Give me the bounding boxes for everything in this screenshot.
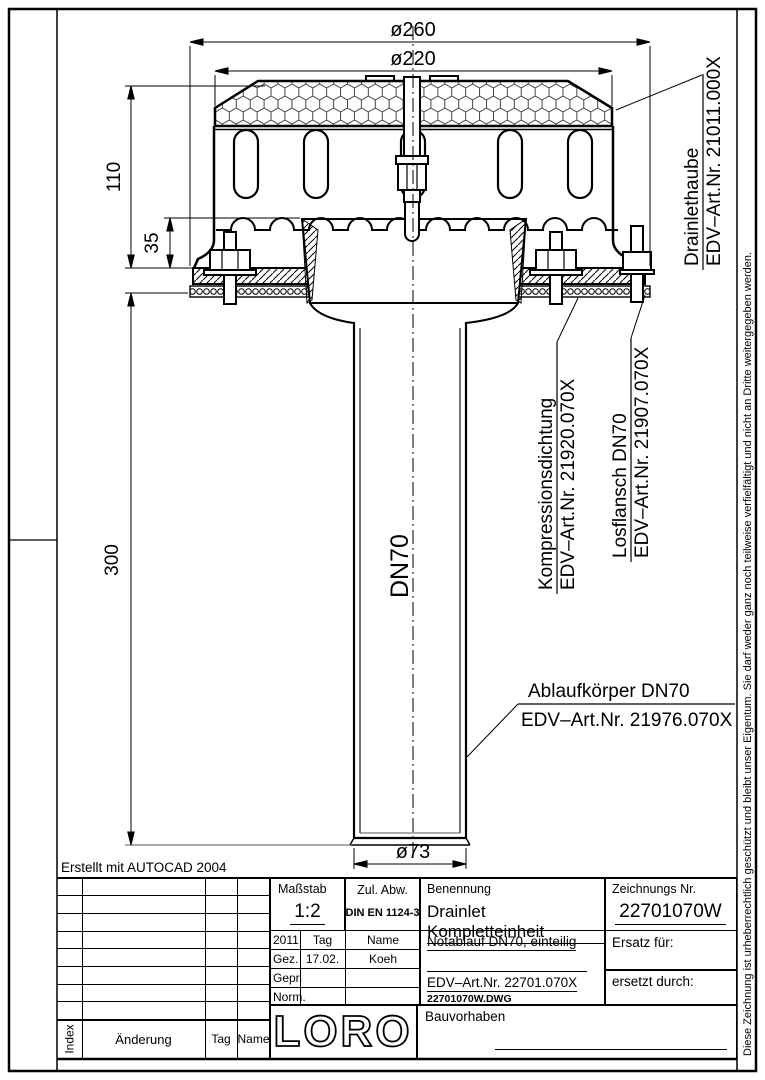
- tolerance-standard: DIN EN 1124-3: [345, 907, 420, 919]
- dim-110: 110: [104, 162, 125, 192]
- label-body-name: Ablaufkörper DN70: [528, 681, 690, 702]
- dim-35: 35: [142, 232, 163, 253]
- dim-d220: ø220: [390, 48, 436, 70]
- rev-col-name: Name: [237, 1019, 270, 1059]
- copyright-vertical-text: Diese Zeichnung ist urheberrechtlich ges…: [742, 252, 754, 1056]
- logo-box: LORO: [269, 1004, 418, 1060]
- label-hood-name: Drainlethaube: [682, 148, 703, 266]
- label-body-artnr: EDV–Art.Nr. 21976.070X: [521, 710, 733, 731]
- label-seal-name: Kompressionsdichtung: [536, 398, 557, 590]
- drain-pipe: [310, 303, 518, 845]
- rev-col-tag: Tag: [205, 1019, 237, 1059]
- bauvorhaben-box: Bauvorhaben: [416, 1004, 737, 1060]
- scale-value: 1:2: [290, 901, 324, 925]
- dim-300: 300: [102, 544, 123, 576]
- drawing-number: 22701070W: [615, 901, 725, 925]
- subtitle: Notablauf DN70, einteilig: [427, 934, 576, 951]
- dim-d73: ø73: [396, 841, 430, 863]
- drawing-sheet: ø260 ø220 110 35 300 ø73 DN70 Dr: [0, 0, 765, 1080]
- dim-d260: ø260: [390, 19, 436, 41]
- part-labels: DN70 Drainlethaube EDV–Art.Nr. 21011.000…: [386, 56, 735, 757]
- zul-abw-box: Zul. Abw. DIN EN 1124-3: [344, 878, 421, 931]
- label-flange-name: Losflansch DN70: [610, 413, 631, 558]
- edv-artnr: EDV–Art.Nr. 22701.070X: [427, 975, 577, 992]
- ersetzt-box: ersetzt durch:: [604, 969, 737, 1006]
- subtitle-box: Notablauf DN70, einteilig EDV–Art.Nr. 22…: [419, 930, 606, 1006]
- svg-text:LORO: LORO: [273, 1007, 412, 1056]
- rev-col-aenderung: Änderung: [82, 1019, 205, 1059]
- loro-logo: LORO: [270, 1005, 416, 1058]
- benennung-box: Benennung Drainlet Kompletteinheit: [419, 878, 606, 931]
- zeichnungsnr-box: Zeichnungs Nr. 22701070W: [604, 878, 737, 931]
- ersatz-box: Ersatz für:: [604, 930, 737, 971]
- pipe-size-label: DN70: [386, 534, 414, 598]
- label-flange-artnr: EDV–Art.Nr. 21907.070X: [632, 346, 653, 558]
- autocad-note: Erstellt mit AUTOCAD 2004: [61, 860, 227, 875]
- label-hood-artnr: EDV–Art.Nr. 21011.000X: [704, 56, 725, 266]
- label-seal-artnr: EDV–Art.Nr. 21920.070X: [558, 378, 579, 590]
- rev-col-index: Index: [57, 1019, 82, 1059]
- massstab-box: Maßstab 1:2: [269, 878, 346, 931]
